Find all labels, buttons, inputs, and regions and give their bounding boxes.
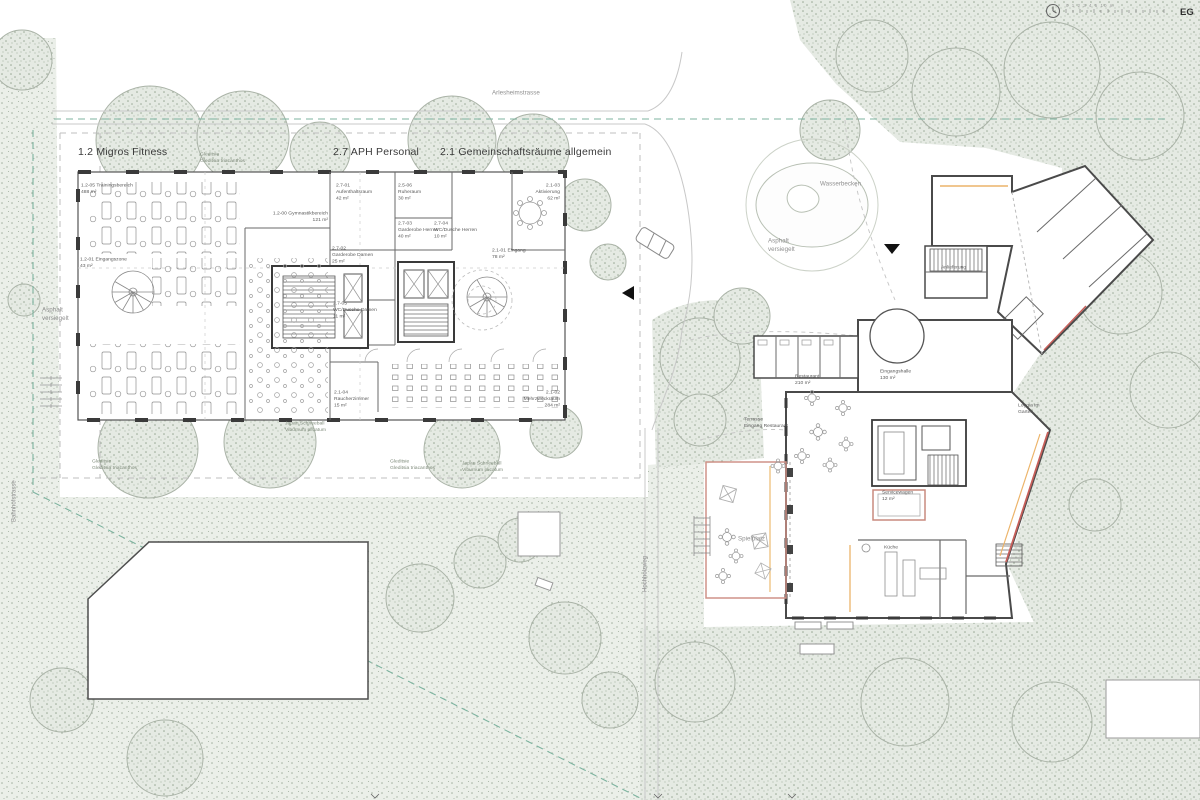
stair-core-b <box>398 262 454 342</box>
restaurant-terrace <box>694 459 793 600</box>
room-label-raucherzimmer: 2.1-04 Raucherzimmer 15 m² <box>334 389 369 409</box>
tree-label-gleditsia-top: Gleditsie Gleditsia triacanthos <box>200 151 245 164</box>
room-label-garderobe-herren: 2.7-03 Garderobe Herren 40 m² <box>398 220 438 240</box>
zone-title-aph-personal: 2.7 APH Personal <box>333 146 419 160</box>
round-court <box>870 309 924 363</box>
room-label-loggia: Loggia im Garten <box>1018 402 1040 415</box>
room-label-garderobe-damen: 2.7-02 Garderobe Damen 25 m² <box>332 245 373 265</box>
tree-label-schneeball-right: Japan Schneeball Viburnum plicatum <box>462 460 503 473</box>
room-label-eingangshalle: Eingangshalle 130 m² <box>880 368 911 381</box>
room-label-trainingsbereich: 1.2-05 Trainingsbereich 488 m² <box>81 182 133 195</box>
existing-hall <box>88 542 368 699</box>
room-label-aufenthaltsraum: 2.7-01 Aufenthaltsraum 42 m² <box>336 182 372 202</box>
site-plan-sheet: 0 1 2 3 4 5 10 m EG 1.2 Migros Fitness 2… <box>0 0 1200 800</box>
tree-label-gleditsia-bottom-mid: Gleditsie Gleditsia triacanthos <box>390 458 435 471</box>
room-label-mehrzweckraum: 2.1-02 Mehrzweckraum 284 m² <box>524 389 560 409</box>
tree-label-gleditsia-bottom-left: Gleditsie Gleditsia triacanthos <box>92 458 137 471</box>
car-icon <box>635 226 676 260</box>
site-plan-canvas: 0 1 2 3 4 5 10 m EG <box>0 0 1200 800</box>
entrance-marker-east <box>884 244 900 254</box>
street-label-hochholzweg: Hochholzweg <box>641 556 649 592</box>
room-label-wc-herren: 2.7-04 WC/Dusche Herren 10 m² <box>434 220 477 240</box>
room-label-aktivierung: 2.1-03 Aktivierung 62 m² <box>535 182 560 202</box>
room-label-servicewagen: Servicewagen 12 m² <box>882 489 913 502</box>
room-label-gymnastikbereich: 1.2-00 Gymnastikbereich 121 m² <box>273 210 328 223</box>
site-label-wasserbecken: Wasserbecken <box>820 180 861 188</box>
room-label-ruheraum: 2.5-06 Ruheraum 30 m² <box>398 182 421 202</box>
entrance-marker-west <box>622 286 634 300</box>
floor-label: EG <box>1180 7 1194 18</box>
gym-equipment <box>152 258 238 306</box>
room-label-restaurant: Restaurant 210 m² <box>795 373 819 386</box>
zone-title-gemeinschaft: 2.1 Gemeinschaftsräume allgemein <box>440 146 612 160</box>
street-label-bahnhofstrasse: Bahnhofstrasse <box>10 480 18 522</box>
room-label-eingangszone: 1.2-01 Eingangszone 43 m² <box>80 256 127 269</box>
room-label-kueche: Küche <box>884 544 898 551</box>
site-label-anlieferung: Anlieferung <box>941 264 966 271</box>
room-label-eingang: 2.1-01 Eingang 78 m² <box>492 247 526 260</box>
site-label-asphalt-right: Asphalt versiegelt <box>768 237 795 253</box>
room-label-wc-damen: 2.7-05 WC/Dusche Damen 11 m² <box>333 300 377 320</box>
scale-text: 0 1 2 3 4 5 10 m <box>1066 3 1115 8</box>
gymnastics-area <box>248 258 328 414</box>
street-label-arlesheimstrasse: Arlesheimstrasse <box>492 89 540 97</box>
site-label-terrasse-eingang: Terrasse Eingang Restaurant <box>744 416 788 429</box>
site-label-spielplatz: Spielplatz <box>738 535 765 543</box>
zone-title-migros-fitness: 1.2 Migros Fitness <box>78 146 167 160</box>
gym-equipment <box>90 344 240 414</box>
site-label-asphalt-left: Asphalt versiegelt <box>42 306 69 322</box>
water-basin <box>746 139 878 271</box>
tree-label-schneeball-mid: Japan Schneeball Viburnum plicatum <box>285 420 326 433</box>
